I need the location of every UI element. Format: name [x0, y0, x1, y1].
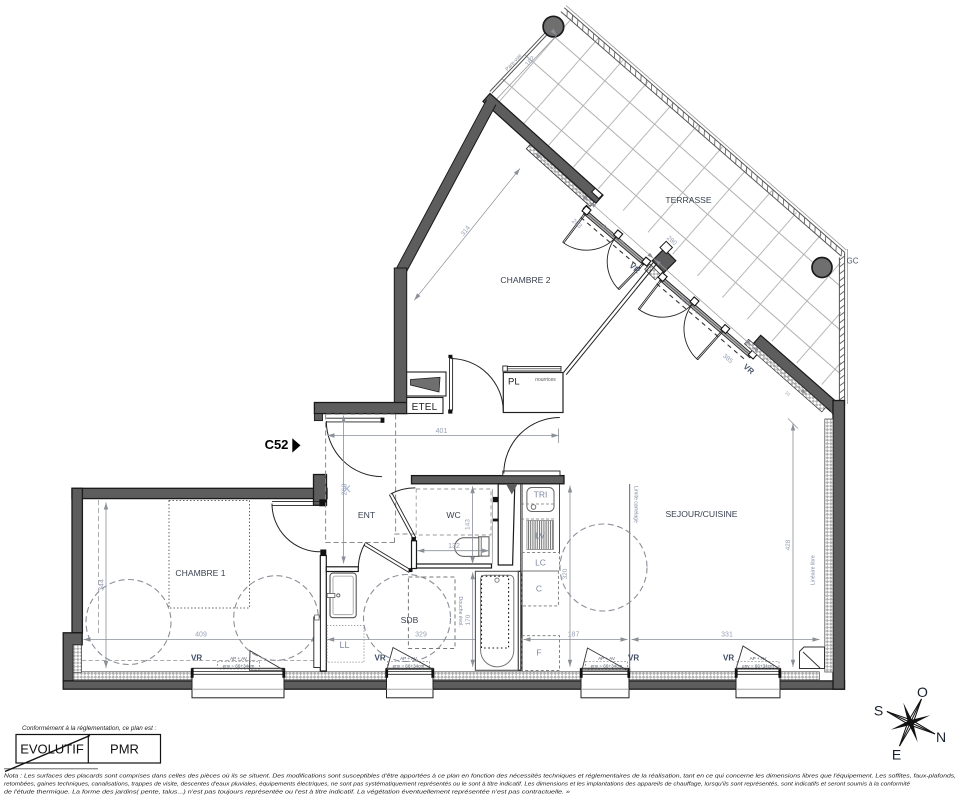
svg-text:170: 170 [465, 614, 472, 625]
svg-text:187: 187 [568, 632, 580, 639]
svg-text:C52: C52 [265, 437, 289, 452]
svg-text:env = 66+34cm: env = 66+34cm [591, 663, 623, 668]
svg-text:env = 66+34cm: env = 66+34cm [223, 663, 255, 668]
svg-text:143: 143 [465, 519, 472, 530]
svg-text:Conformément à la réglementati: Conformément à la réglementation, ce pla… [22, 725, 157, 732]
svg-text:LL: LL [339, 640, 349, 650]
svg-text:E: E [892, 747, 901, 763]
svg-text:320: 320 [562, 568, 569, 579]
svg-text:Limite carrelage: Limite carrelage [633, 486, 639, 523]
svg-text:344: 344 [99, 579, 106, 591]
svg-text:O: O [917, 684, 928, 700]
svg-text:331: 331 [721, 632, 733, 639]
svg-text:GC: GC [847, 257, 859, 266]
svg-text:409: 409 [195, 632, 207, 639]
svg-text:AP + AV: AP + AV [598, 656, 616, 661]
svg-text:nourrices: nourrices [535, 377, 556, 383]
svg-text:retombées, gaines techniques,: retombées, gaines techniques, canalisati… [4, 782, 911, 788]
svg-text:Douche évol.: Douche évol. [457, 597, 463, 627]
svg-text:PL: PL [508, 377, 520, 388]
svg-text:C: C [536, 584, 542, 594]
svg-text:SEJOUR/CUISINE: SEJOUR/CUISINE [665, 509, 737, 519]
svg-text:TRI: TRI [534, 490, 548, 500]
svg-text:env = 66+34cm: env = 66+34cm [742, 663, 774, 668]
svg-text:329: 329 [415, 632, 427, 639]
svg-text:CHAMBRE 2: CHAMBRE 2 [500, 275, 550, 285]
svg-text:SDB: SDB [401, 615, 419, 625]
svg-text:VR: VR [723, 654, 734, 663]
svg-text:AP + AV: AP + AV [750, 656, 768, 661]
svg-text:428: 428 [785, 539, 792, 550]
svg-text:ENT: ENT [358, 510, 376, 520]
svg-text:Linéaire libre: Linéaire libre [811, 555, 817, 585]
svg-text:Nota : Les surfaces des placar: Nota : Les surfaces des placards sont co… [4, 774, 956, 780]
svg-text:ETEL: ETEL [412, 402, 438, 413]
svg-text:LC: LC [535, 558, 546, 568]
svg-text:env = 66+34cm: env = 66+34cm [393, 663, 425, 668]
svg-text:F: F [536, 648, 541, 658]
svg-text:LV: LV [535, 531, 545, 541]
svg-text:S: S [874, 703, 883, 719]
svg-text:PMR: PMR [110, 742, 139, 757]
svg-text:N: N [936, 729, 946, 745]
svg-text:132: 132 [448, 543, 460, 550]
svg-text:VR: VR [375, 654, 386, 663]
svg-text:de l'étude thermique. La forme: de l'étude thermique. La forme des jardi… [4, 790, 571, 796]
svg-text:TERRASSE: TERRASSE [665, 195, 712, 205]
svg-text:EVOLUTIF: EVOLUTIF [20, 742, 84, 757]
svg-text:VR: VR [191, 654, 202, 663]
svg-text:CHAMBRE 1: CHAMBRE 1 [175, 568, 225, 578]
svg-text:401: 401 [436, 428, 448, 435]
svg-text:WC: WC [446, 510, 460, 520]
